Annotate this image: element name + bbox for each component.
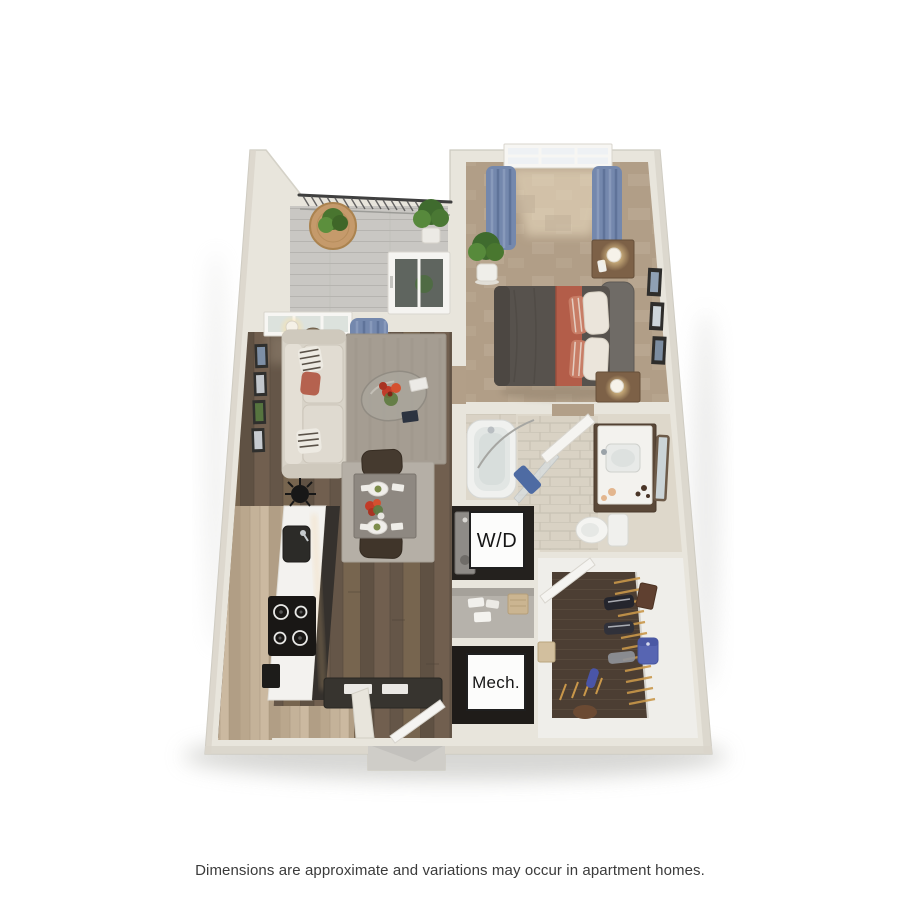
room-balcony <box>290 195 451 314</box>
vanity <box>594 424 656 512</box>
wall-shade-bottom <box>205 746 712 754</box>
nightstand-bottom <box>596 372 640 402</box>
accent-pillow <box>300 371 321 396</box>
stove-cooktop <box>268 596 316 656</box>
walk-in-closet <box>538 558 698 738</box>
striped-pillow-2 <box>296 428 322 454</box>
floorplan-page: W/D Mech. <box>0 0 900 900</box>
dining-area <box>342 449 434 562</box>
entry-bench <box>324 678 442 708</box>
sofa <box>282 330 346 478</box>
mechanical-closet: Mech. <box>452 646 534 724</box>
washer-dryer-closet: W/D <box>452 506 534 580</box>
floorplan-render: W/D Mech. <box>0 0 900 900</box>
towel-3 <box>474 612 492 623</box>
kitchen-sink <box>283 526 310 562</box>
bedroom-doorway <box>452 366 466 404</box>
brown-item <box>573 705 597 719</box>
striped-pillow <box>297 345 324 374</box>
bedroom-window <box>504 144 612 168</box>
balcony-door <box>388 252 450 314</box>
blue-bag <box>638 638 658 664</box>
mech-label-text: Mech. <box>472 673 520 692</box>
pillow-1 <box>583 291 610 335</box>
garment-dark-2 <box>604 621 635 635</box>
towel-1 <box>468 597 485 608</box>
wd-label-text: W/D <box>477 530 517 552</box>
linen-closet <box>452 588 534 638</box>
coffee-maker <box>262 664 280 688</box>
basket <box>508 594 528 614</box>
disclaimer-text: Dimensions are approximate and variation… <box>0 862 900 879</box>
dining-chair-top <box>361 449 402 477</box>
closet-basket <box>538 642 555 662</box>
nightstand-top <box>592 240 634 278</box>
leaning-mirror <box>654 436 668 500</box>
room-bedroom <box>466 144 670 402</box>
balcony-table <box>310 203 356 249</box>
bathtub <box>467 420 516 498</box>
tub-faucet <box>488 427 495 434</box>
closet-carpet <box>552 572 648 718</box>
kitchen-floor-strip <box>268 706 354 738</box>
